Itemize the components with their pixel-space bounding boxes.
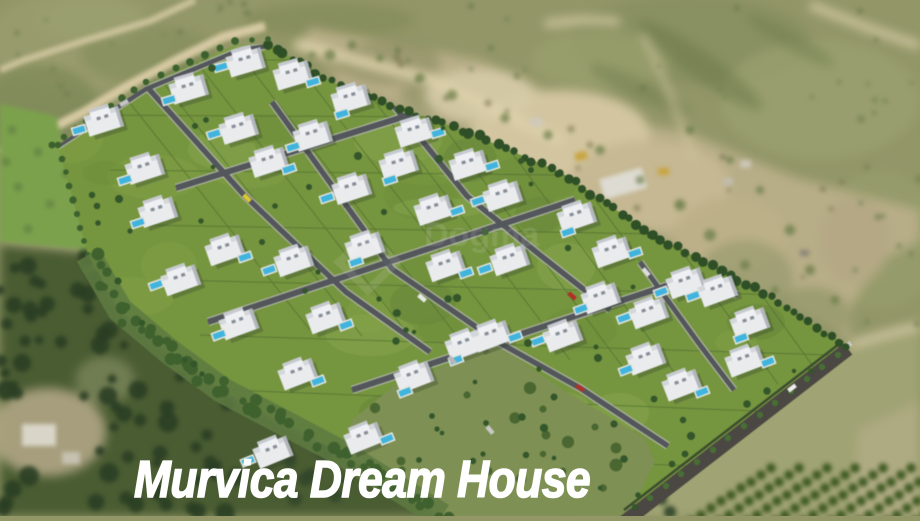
svg-text:Dogma: Dogma [424,216,540,254]
svg-text:Murvica Dream House: Murvica Dream House [134,451,590,509]
